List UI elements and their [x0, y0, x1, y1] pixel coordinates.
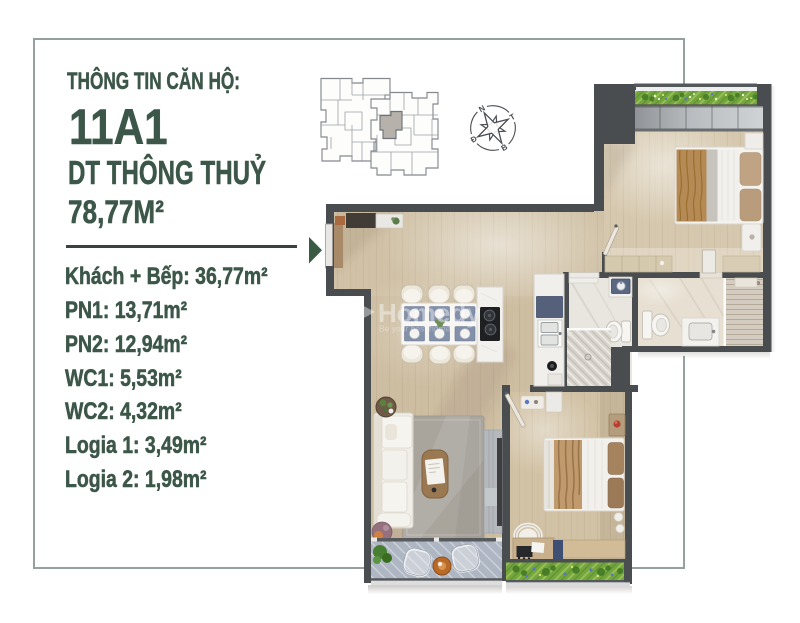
svg-text:Be your best home: Be your best home — [379, 324, 451, 334]
